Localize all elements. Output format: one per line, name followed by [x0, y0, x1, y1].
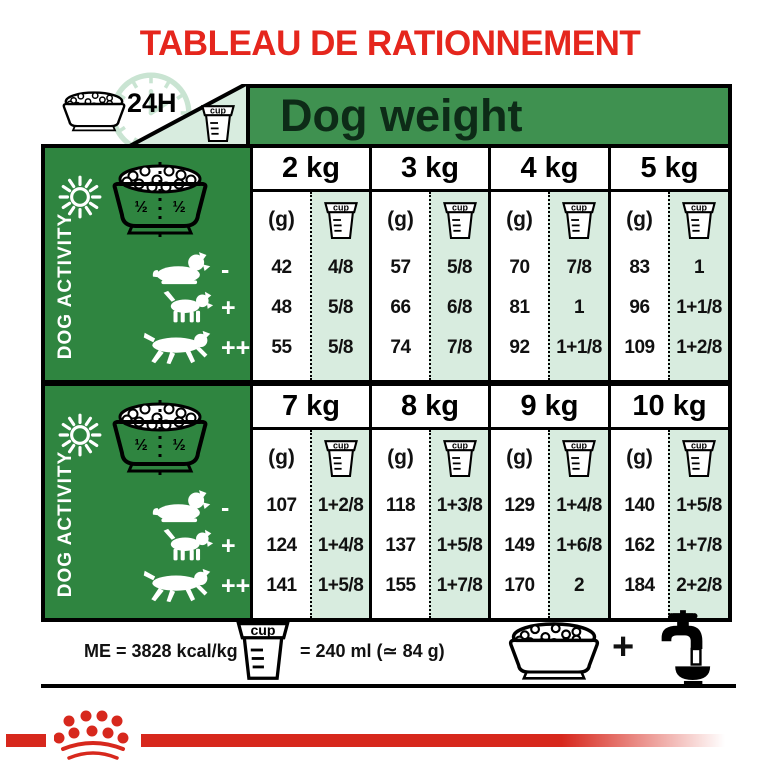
ration-table: DOG ACTIVITY - + ++ 2 kg (g) — [41, 144, 732, 622]
standing-dog-icon — [160, 289, 214, 327]
cup-corner-triangle — [118, 84, 246, 148]
activity-row-low: - — [105, 488, 255, 528]
cup-value: 1+2/8 — [676, 328, 722, 368]
weight-header: 9 kg — [491, 386, 608, 430]
activity-row-medium: + — [105, 526, 255, 566]
half-ration-bowl-icon — [105, 398, 215, 478]
weight-column-9kg: 9 kg (g) 129 149 170 1+4/8 1+6/8 2 — [488, 386, 608, 618]
measuring-cup-icon — [442, 435, 478, 481]
grams-value: 140 — [624, 486, 654, 526]
weight-column-8kg: 8 kg (g) 118 137 155 1+3/8 1+5/8 1+7/8 — [369, 386, 488, 618]
cup-value: 1+5/8 — [437, 526, 483, 566]
brand-bar-right — [141, 734, 725, 747]
cup-value: 1+7/8 — [437, 566, 483, 606]
weight-header: 2 kg — [253, 148, 369, 192]
cup-value: 5/8 — [328, 328, 353, 368]
measuring-cup-icon — [561, 435, 597, 481]
measuring-cup-icon — [681, 197, 717, 243]
table-section-small-weights: DOG ACTIVITY - + ++ 2 kg (g) — [45, 148, 728, 380]
brand-bar-left — [6, 734, 46, 747]
weight-header: 3 kg — [372, 148, 488, 192]
dog-activity-panel: DOG ACTIVITY - + ++ — [45, 148, 250, 380]
grams-value: 155 — [385, 566, 415, 606]
weight-header: 10 kg — [611, 386, 728, 430]
cup-value: 1+3/8 — [437, 486, 483, 526]
cup-value: 7/8 — [567, 248, 592, 288]
cup-value: 1+4/8 — [556, 486, 602, 526]
grams-value: 42 — [271, 248, 291, 288]
feeding-guide-page: cup — [0, 0, 780, 780]
activity-row-high: ++ — [105, 328, 255, 368]
grams-value: 96 — [629, 288, 649, 328]
cup-value: 1+5/8 — [676, 486, 722, 526]
weight-column-2kg: 2 kg (g) 42 48 55 4/8 5/8 5/8 — [250, 148, 369, 380]
half-ration-bowl-icon — [105, 160, 215, 240]
grams-value: 57 — [390, 248, 410, 288]
measuring-cup-icon — [561, 197, 597, 243]
cup-value: 1 — [574, 288, 584, 328]
weight-header: 5 kg — [611, 148, 728, 192]
dog-activity-label: DOG ACTIVITY — [55, 202, 77, 370]
cup-value: 4/8 — [328, 248, 353, 288]
weight-column-4kg: 4 kg (g) 70 81 92 7/8 1 1+1/8 — [488, 148, 608, 380]
grams-value: 170 — [504, 566, 534, 606]
cup-value: 1+4/8 — [318, 526, 364, 566]
grams-value: 66 — [390, 288, 410, 328]
cup-value: 1+2/8 — [318, 486, 364, 526]
cup-value: 1 — [694, 248, 704, 288]
grams-value: 137 — [385, 526, 415, 566]
energy-info: ME = 3828 kcal/kg — [84, 641, 238, 662]
grams-unit-label: (g) — [506, 430, 533, 486]
grams-unit-label: (g) — [387, 430, 414, 486]
grams-value: 162 — [624, 526, 654, 566]
water-tap-icon — [650, 610, 714, 686]
dog-weight-header: Dog weight — [246, 84, 732, 148]
table-section-large-weights: DOG ACTIVITY - + ++ 7 kg (g) — [45, 386, 728, 618]
measuring-cup-icon — [234, 618, 292, 682]
cup-value: 1+7/8 — [676, 526, 722, 566]
grams-value: 70 — [509, 248, 529, 288]
grams-unit-label: (g) — [626, 192, 653, 248]
grams-value: 184 — [624, 566, 654, 606]
activity-row-medium: + — [105, 288, 255, 328]
grams-unit-label: (g) — [626, 430, 653, 486]
grams-value: 124 — [266, 526, 296, 566]
cup-equivalence: = 240 ml (≃ 84 g) — [300, 641, 445, 662]
grams-value: 55 — [271, 328, 291, 368]
weight-column-10kg: 10 kg (g) 140 162 184 1+5/8 1+7/8 2+2/8 — [608, 386, 728, 618]
weight-column-7kg: 7 kg (g) 107 124 141 1+2/8 1+4/8 1+5/8 — [250, 386, 369, 618]
moon-icon — [221, 170, 247, 204]
grams-value: 141 — [266, 566, 296, 606]
grams-value: 107 — [266, 486, 296, 526]
grams-value: 118 — [386, 486, 415, 526]
grams-value: 129 — [504, 486, 534, 526]
grams-unit-label: (g) — [268, 192, 295, 248]
resting-dog-icon — [152, 251, 214, 289]
grams-unit-label: (g) — [268, 430, 295, 486]
running-dog-icon — [140, 329, 214, 367]
grams-unit-label: (g) — [506, 192, 533, 248]
standing-dog-icon — [160, 527, 214, 565]
grams-value: 149 — [504, 526, 534, 566]
plus-sign: + — [612, 626, 634, 669]
grams-value: 83 — [629, 248, 649, 288]
activity-row-high: ++ — [105, 566, 255, 606]
cup-value: 2 — [574, 566, 584, 606]
weight-header: 7 kg — [253, 386, 369, 430]
cup-value: 5/8 — [447, 248, 472, 288]
grams-value: 48 — [271, 288, 291, 328]
measuring-cup-icon — [323, 197, 359, 243]
dog-activity-panel: DOG ACTIVITY - + ++ — [45, 386, 250, 618]
cup-value: 1+1/8 — [676, 288, 722, 328]
weight-header: 8 kg — [372, 386, 488, 430]
measuring-cup-icon — [323, 435, 359, 481]
cup-value: 1+5/8 — [318, 566, 364, 606]
divider-line — [41, 684, 736, 688]
cup-value: 1+6/8 — [556, 526, 602, 566]
cup-value: 6/8 — [447, 288, 472, 328]
grams-value: 81 — [509, 288, 529, 328]
weight-column-5kg: 5 kg (g) 83 96 109 1 1+1/8 1+2/8 — [608, 148, 728, 380]
weight-column-3kg: 3 kg (g) 57 66 74 5/8 6/8 7/8 — [369, 148, 488, 380]
grams-value: 109 — [624, 328, 654, 368]
dog-activity-label: DOG ACTIVITY — [55, 440, 77, 608]
cup-value: 1+1/8 — [556, 328, 602, 368]
royal-canin-crown-logo — [54, 701, 134, 763]
measuring-cup-icon — [681, 435, 717, 481]
resting-dog-icon — [152, 489, 214, 527]
grams-unit-label: (g) — [387, 192, 414, 248]
food-bowl-icon — [494, 618, 614, 680]
activity-row-low: - — [105, 250, 255, 290]
grams-value: 74 — [390, 328, 410, 368]
moon-icon — [221, 408, 247, 442]
measuring-cup-icon — [442, 197, 478, 243]
running-dog-icon — [140, 567, 214, 605]
cup-value: 2+2/8 — [676, 566, 722, 606]
page-title: TABLEAU DE RATIONNEMENT — [0, 24, 780, 64]
weight-header: 4 kg — [491, 148, 608, 192]
grams-value: 92 — [509, 328, 529, 368]
cup-value: 7/8 — [447, 328, 472, 368]
cup-value: 5/8 — [328, 288, 353, 328]
